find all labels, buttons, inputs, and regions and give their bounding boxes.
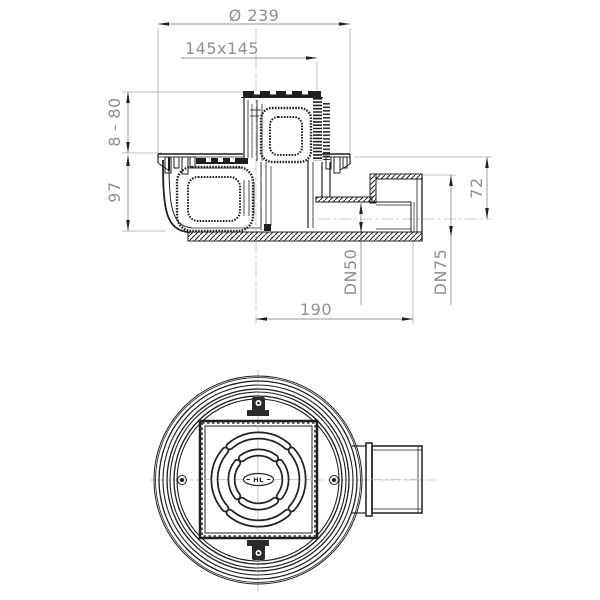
drawing-page: Ø 239 145x145 8 - 80 97 72 (0, 0, 600, 600)
top-view: HL (150, 370, 437, 592)
logo-oval: HL (244, 474, 274, 486)
outlet-pipe-top (352, 443, 422, 516)
dim-dn50-label: DN50 (341, 249, 360, 296)
section-view: Ø 239 145x145 8 - 80 97 72 (105, 6, 492, 324)
dim-outer-diameter-label: Ø 239 (229, 6, 280, 25)
riser-assembly (241, 91, 327, 162)
dim-outlet-length: 190 (256, 300, 413, 321)
dim-dn50: DN50 (341, 203, 363, 305)
trap-insert-raised-outer (261, 108, 311, 162)
flange-right (322, 154, 350, 173)
dim-outlet-length-label: 190 (300, 300, 332, 319)
dim-outlet-height-label: 72 (467, 177, 486, 198)
clip-bottom (247, 540, 269, 560)
dim-dn75-label: DN75 (431, 249, 450, 296)
trap-insert-raised-inner (270, 117, 302, 155)
dim-height-adjust-label: 8 - 80 (105, 97, 124, 146)
bottom-wall (188, 232, 422, 241)
dim-body-height-label: 97 (105, 181, 124, 202)
dim-dn75: DN75 (431, 175, 453, 305)
dim-height-adjust: 8 - 80 (105, 92, 130, 153)
dim-outer-diameter: Ø 239 (158, 6, 350, 26)
outlet-pipe-section (316, 174, 422, 241)
trap-insert-lowered-inner (188, 177, 240, 221)
dim-grate-size-label: 145x145 (185, 39, 259, 58)
technical-drawing-canvas: Ø 239 145x145 8 - 80 97 72 (0, 0, 600, 600)
dim-grate-size: 145x145 (181, 39, 317, 60)
hl-logo-text: HL (253, 476, 264, 484)
dim-outlet-height: 72 (467, 157, 489, 219)
dim-body-height: 97 (105, 155, 130, 231)
flange-left (158, 154, 248, 174)
